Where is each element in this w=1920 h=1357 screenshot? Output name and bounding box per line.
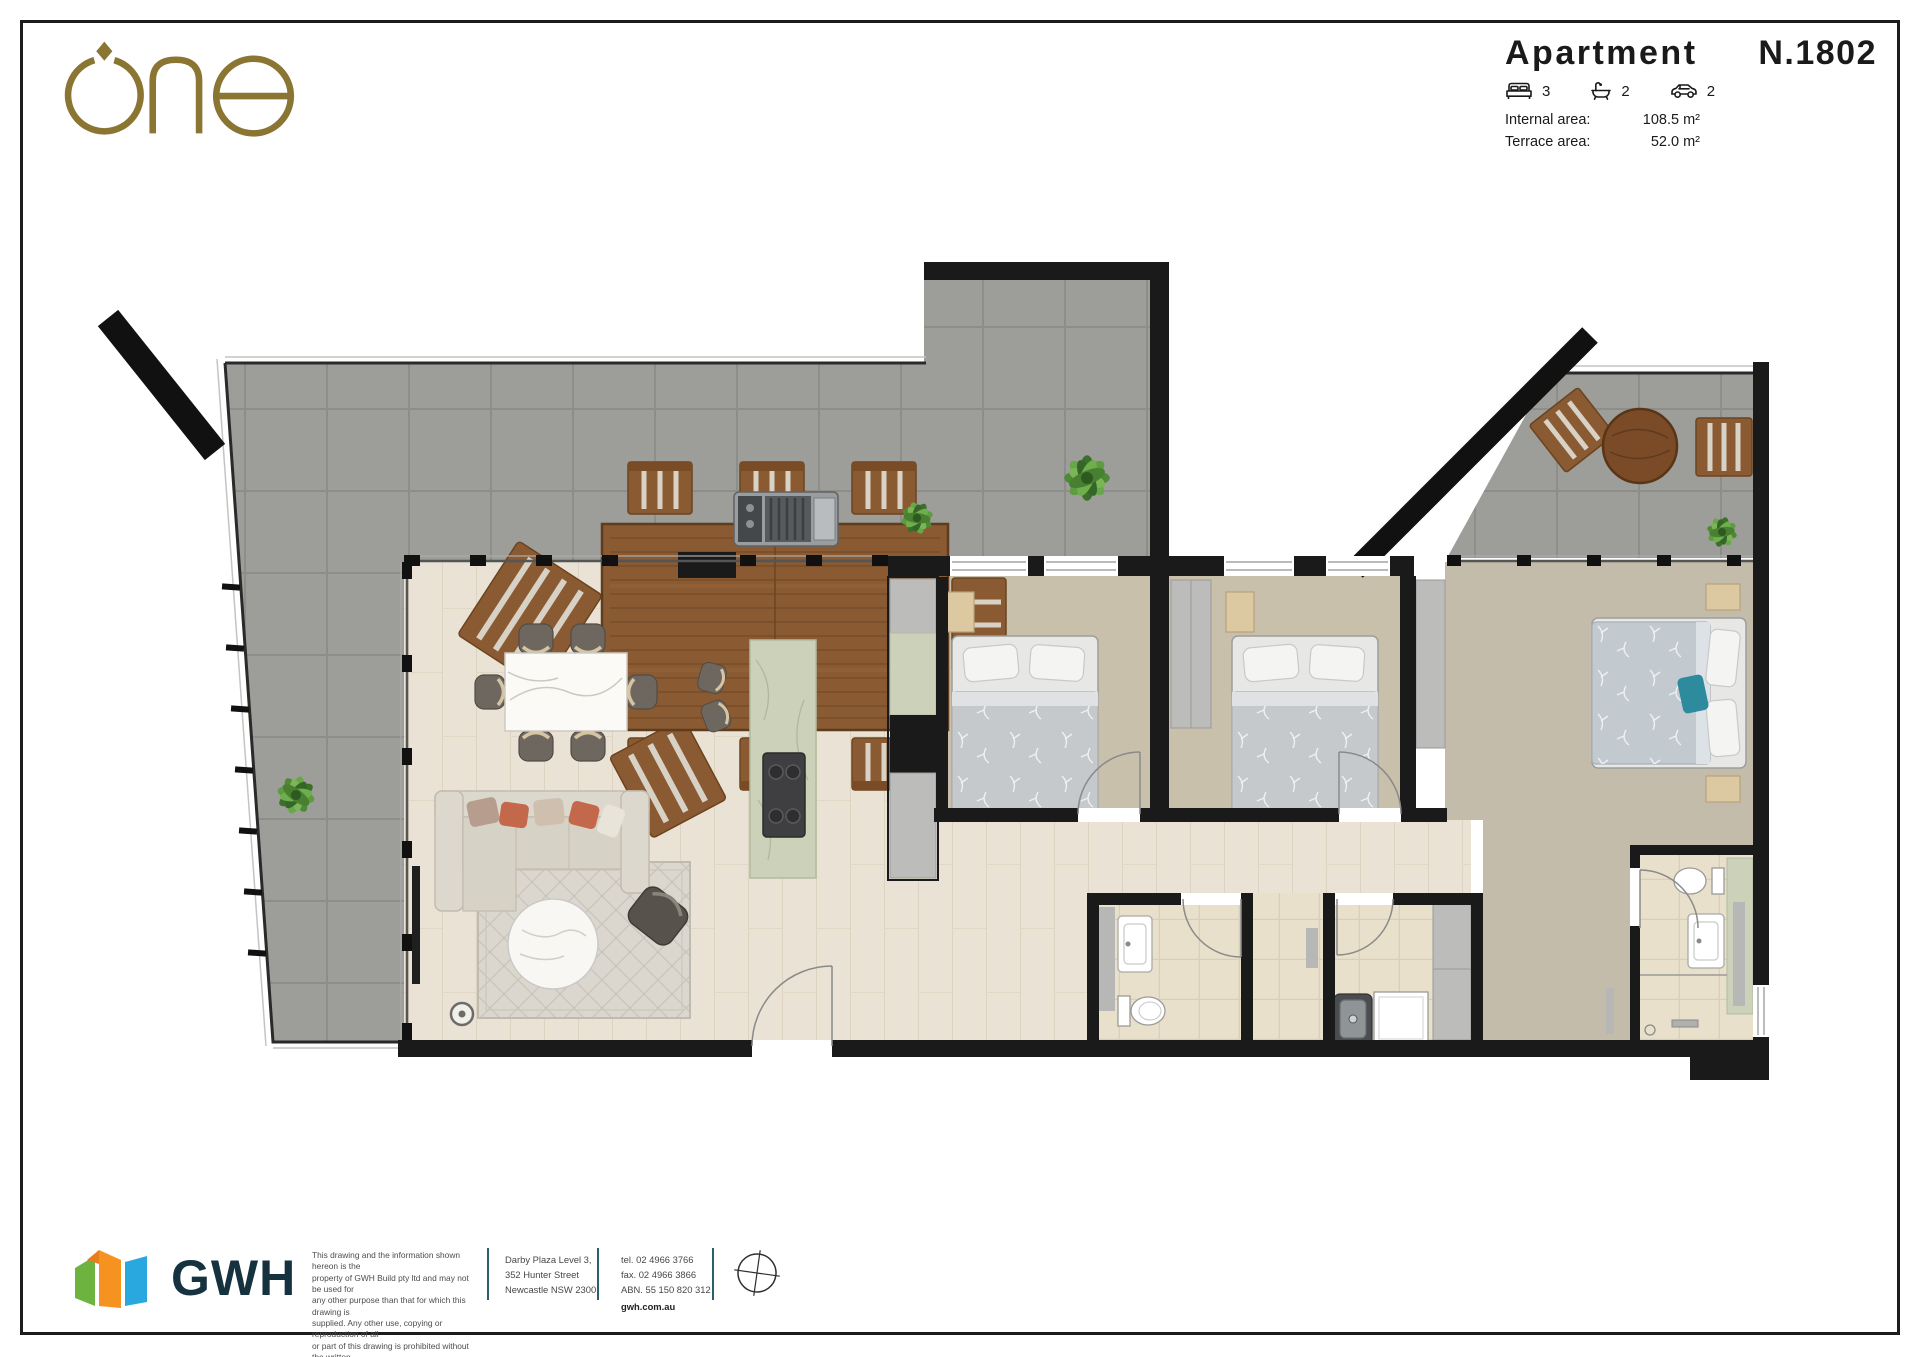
bedside-table xyxy=(946,592,974,632)
bed-1 xyxy=(952,636,1098,812)
floor-plan-sheet: Apartment N.1802 3 xyxy=(0,0,1920,1357)
disclaimer-line: This drawing and the information shown h… xyxy=(312,1250,478,1273)
plant xyxy=(1064,455,1110,501)
contact-block: tel. 02 4966 3766 fax. 02 4966 3866 ABN.… xyxy=(621,1252,711,1314)
disclaimer: This drawing and the information shown h… xyxy=(312,1250,478,1357)
gwh-logo-icon xyxy=(73,1246,161,1310)
bedside-table xyxy=(1706,776,1740,802)
bedside-table xyxy=(1706,584,1740,610)
gwh-logo: GWH xyxy=(73,1246,296,1310)
bbq-grill xyxy=(734,492,838,546)
master-bed xyxy=(1592,618,1746,768)
address-block: Darby Plaza Level 3, 352 Hunter Street N… xyxy=(505,1252,596,1297)
compass-icon xyxy=(733,1249,781,1302)
bed-2 xyxy=(1232,636,1378,812)
bedside-table xyxy=(1226,592,1254,632)
address-line: Darby Plaza Level 3, xyxy=(505,1252,596,1267)
laundry-fixtures xyxy=(1334,992,1428,1044)
footer-divider xyxy=(487,1248,489,1300)
footer-divider xyxy=(597,1248,599,1300)
disclaimer-line: any other purpose than that for which th… xyxy=(312,1295,478,1318)
footer-divider xyxy=(712,1248,714,1300)
address-line: Newcastle NSW 2300 xyxy=(505,1282,596,1297)
tv-unit xyxy=(412,866,420,984)
disclaimer-line: or part of this drawing is prohibited wi… xyxy=(312,1341,478,1357)
address-line: 352 Hunter Street xyxy=(505,1267,596,1282)
gwh-logo-text: GWH xyxy=(171,1253,296,1303)
contact-line: fax. 02 4966 3866 xyxy=(621,1267,711,1282)
coffee-table xyxy=(508,899,598,989)
disclaimer-line: supplied. Any other use, copying or repr… xyxy=(312,1318,478,1341)
kitchen-island xyxy=(750,640,816,878)
contact-line: tel. 02 4966 3766 xyxy=(621,1252,711,1267)
floor-plan xyxy=(0,0,1920,1357)
website-link[interactable]: gwh.com.au xyxy=(621,1299,711,1314)
floor-lamp xyxy=(451,1003,473,1025)
disclaimer-line: property of GWH Build pty ltd and may no… xyxy=(312,1273,478,1296)
contact-line: ABN. 55 150 820 312 xyxy=(621,1282,711,1297)
kitchen-joinery xyxy=(888,577,938,880)
